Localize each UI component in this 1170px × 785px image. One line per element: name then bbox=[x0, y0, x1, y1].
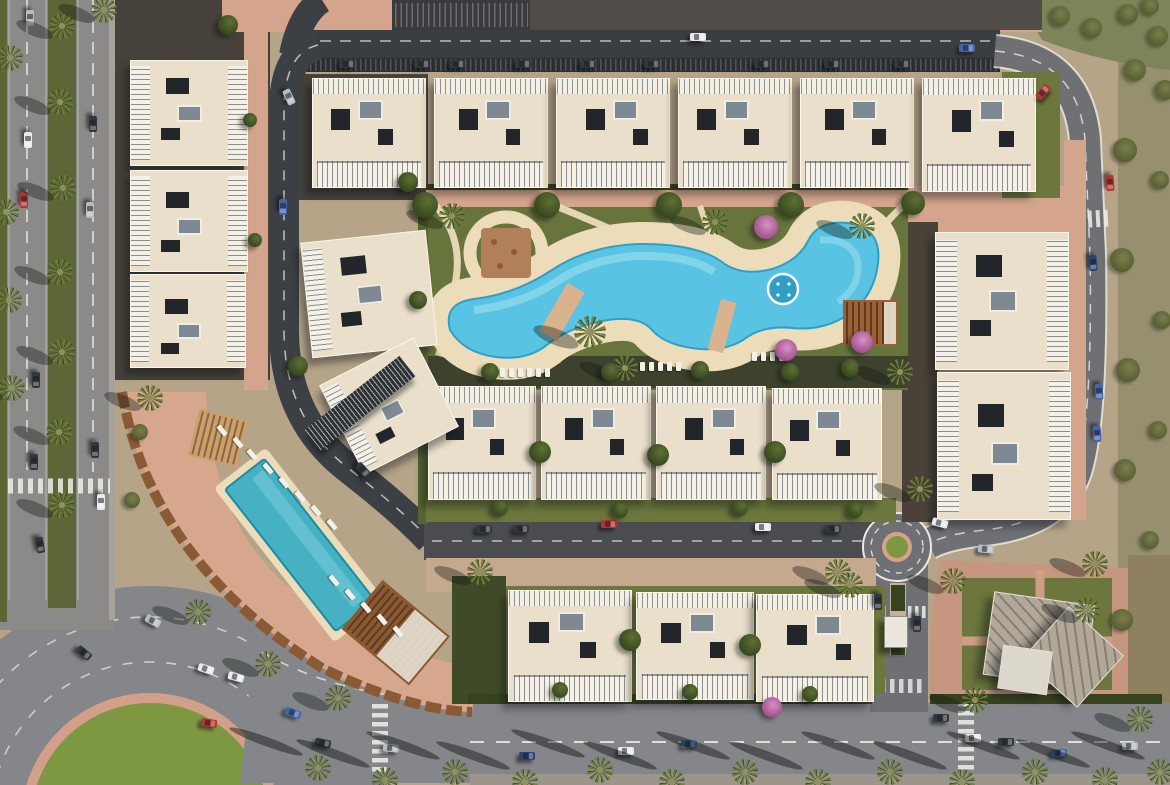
car bbox=[1093, 426, 1102, 442]
car-windshield bbox=[418, 61, 424, 67]
car-windshield bbox=[1107, 178, 1114, 184]
car-windshield bbox=[25, 136, 31, 142]
car-windshield bbox=[648, 61, 654, 67]
car bbox=[91, 442, 99, 458]
car bbox=[959, 44, 975, 52]
car bbox=[314, 737, 331, 748]
car-roof-highlight bbox=[98, 504, 104, 508]
car-windshield bbox=[517, 526, 523, 532]
car-roof-highlight bbox=[969, 45, 973, 51]
car-roof-highlight bbox=[914, 626, 920, 630]
car-roof-highlight bbox=[349, 61, 353, 67]
car-roof-highlight bbox=[590, 61, 594, 67]
car bbox=[519, 752, 535, 760]
car-windshield bbox=[914, 620, 920, 626]
car-roof-highlight bbox=[207, 667, 213, 674]
car-windshield bbox=[829, 526, 835, 532]
car-roof-highlight bbox=[835, 526, 839, 532]
car bbox=[894, 60, 910, 68]
car bbox=[75, 645, 92, 661]
car bbox=[1035, 83, 1051, 100]
car bbox=[601, 520, 617, 528]
car bbox=[931, 517, 949, 529]
car-windshield bbox=[280, 203, 286, 209]
site-plan-aerial-render: Residential compound master plan - aeria… bbox=[0, 0, 1170, 785]
car-roof-highlight bbox=[1094, 436, 1100, 440]
car-windshield bbox=[694, 34, 700, 40]
car-windshield bbox=[1094, 429, 1100, 435]
car bbox=[998, 738, 1014, 746]
car bbox=[227, 671, 245, 683]
car-roof-highlight bbox=[393, 745, 398, 751]
car bbox=[97, 494, 105, 510]
car bbox=[681, 740, 697, 748]
car-windshield bbox=[90, 120, 96, 126]
car-windshield bbox=[343, 61, 349, 67]
car-roof-highlight bbox=[486, 526, 490, 532]
car-roof-highlight bbox=[1090, 265, 1096, 270]
car bbox=[35, 536, 46, 553]
car bbox=[355, 461, 372, 478]
car bbox=[86, 202, 94, 218]
car bbox=[339, 60, 355, 68]
car bbox=[1088, 255, 1097, 272]
car bbox=[284, 707, 302, 720]
car bbox=[197, 663, 215, 676]
car-roof-highlight bbox=[525, 61, 529, 67]
car bbox=[913, 616, 921, 632]
car bbox=[1122, 742, 1138, 750]
car-windshield bbox=[1126, 743, 1132, 749]
car-roof-highlight bbox=[943, 715, 947, 721]
car bbox=[32, 372, 40, 388]
car-windshield bbox=[981, 546, 987, 553]
car-windshield bbox=[27, 14, 33, 20]
car-windshield bbox=[453, 61, 459, 67]
car-roof-highlight bbox=[90, 126, 96, 130]
car-windshield bbox=[963, 45, 969, 51]
car bbox=[201, 718, 218, 728]
car-roof-highlight bbox=[92, 452, 98, 456]
car-windshield bbox=[584, 61, 590, 67]
car bbox=[89, 116, 97, 132]
car-roof-highlight bbox=[325, 741, 330, 747]
car-roof-highlight bbox=[941, 521, 946, 528]
car-roof-highlight bbox=[459, 61, 463, 67]
car-windshield bbox=[1055, 750, 1061, 756]
car-roof-highlight bbox=[287, 98, 294, 104]
car-roof-highlight bbox=[834, 61, 838, 67]
car-roof-highlight bbox=[33, 382, 39, 386]
car bbox=[449, 60, 465, 68]
car bbox=[580, 60, 596, 68]
car bbox=[30, 454, 38, 470]
car bbox=[874, 594, 882, 610]
car-windshield bbox=[605, 521, 611, 527]
car-roof-highlight bbox=[1132, 743, 1136, 749]
car-windshield bbox=[898, 61, 904, 67]
car-windshield bbox=[622, 748, 628, 754]
car-roof-highlight bbox=[1008, 739, 1012, 745]
car-windshield bbox=[758, 61, 764, 67]
car bbox=[144, 614, 162, 629]
car-roof-highlight bbox=[38, 547, 44, 552]
car-windshield bbox=[519, 61, 525, 67]
car-roof-highlight bbox=[1107, 185, 1113, 190]
car bbox=[26, 10, 34, 26]
car-roof-highlight bbox=[280, 209, 286, 213]
car-roof-highlight bbox=[529, 753, 533, 759]
car-roof-highlight bbox=[31, 464, 37, 468]
car bbox=[279, 199, 287, 215]
car-windshield bbox=[1096, 387, 1102, 393]
car-windshield bbox=[937, 715, 943, 721]
car-windshield bbox=[21, 196, 27, 202]
car-windshield bbox=[386, 745, 392, 752]
car bbox=[690, 33, 706, 41]
car-windshield bbox=[523, 753, 529, 759]
car-windshield bbox=[87, 206, 93, 212]
car-windshield bbox=[1090, 258, 1097, 264]
car-roof-highlight bbox=[764, 61, 768, 67]
car-roof-highlight bbox=[27, 20, 33, 24]
car-roof-highlight bbox=[988, 546, 993, 552]
car-roof-highlight bbox=[294, 711, 300, 718]
car bbox=[825, 525, 841, 533]
car-roof-highlight bbox=[691, 741, 695, 747]
car bbox=[933, 714, 949, 722]
car-windshield bbox=[33, 376, 39, 382]
car bbox=[755, 523, 771, 531]
car bbox=[754, 60, 770, 68]
car-windshield bbox=[828, 61, 834, 67]
car bbox=[282, 88, 296, 106]
car-roof-highlight bbox=[211, 721, 216, 727]
car-roof-highlight bbox=[154, 620, 160, 627]
car-roof-highlight bbox=[1061, 750, 1065, 756]
car-roof-highlight bbox=[84, 652, 91, 659]
car-roof-highlight bbox=[875, 604, 881, 608]
car-roof-highlight bbox=[362, 470, 369, 477]
car-windshield bbox=[31, 458, 37, 464]
car-roof-highlight bbox=[611, 521, 615, 527]
car bbox=[513, 525, 529, 533]
car-windshield bbox=[875, 598, 881, 604]
car-windshield bbox=[685, 741, 691, 747]
car-windshield bbox=[92, 446, 98, 452]
car bbox=[24, 132, 32, 148]
car-roof-highlight bbox=[21, 202, 27, 206]
car-roof-highlight bbox=[654, 61, 658, 67]
car-roof-highlight bbox=[628, 748, 632, 754]
car-windshield bbox=[759, 524, 765, 530]
car-roof-highlight bbox=[975, 735, 979, 741]
car-windshield bbox=[480, 526, 486, 532]
car bbox=[965, 734, 981, 742]
car-roof-highlight bbox=[87, 212, 93, 216]
car-roof-highlight bbox=[904, 61, 908, 67]
car-roof-highlight bbox=[523, 526, 527, 532]
car bbox=[644, 60, 660, 68]
car bbox=[476, 525, 492, 533]
car-roof-highlight bbox=[700, 34, 704, 40]
car bbox=[618, 747, 634, 755]
car bbox=[824, 60, 840, 68]
car-roof-highlight bbox=[1096, 394, 1102, 398]
car-roof-highlight bbox=[237, 675, 242, 682]
car bbox=[20, 192, 28, 208]
car bbox=[1095, 384, 1104, 400]
cars-layer bbox=[0, 0, 1170, 785]
car bbox=[414, 60, 430, 68]
car-windshield bbox=[969, 735, 975, 741]
car bbox=[1051, 749, 1067, 757]
car bbox=[978, 544, 995, 553]
car-roof-highlight bbox=[424, 61, 428, 67]
car-roof-highlight bbox=[25, 142, 31, 146]
car-roof-highlight bbox=[765, 524, 769, 530]
car-windshield bbox=[204, 719, 211, 726]
car bbox=[1105, 175, 1114, 192]
car bbox=[383, 743, 400, 753]
car-windshield bbox=[1002, 739, 1008, 745]
car-windshield bbox=[98, 498, 104, 504]
car bbox=[515, 60, 531, 68]
